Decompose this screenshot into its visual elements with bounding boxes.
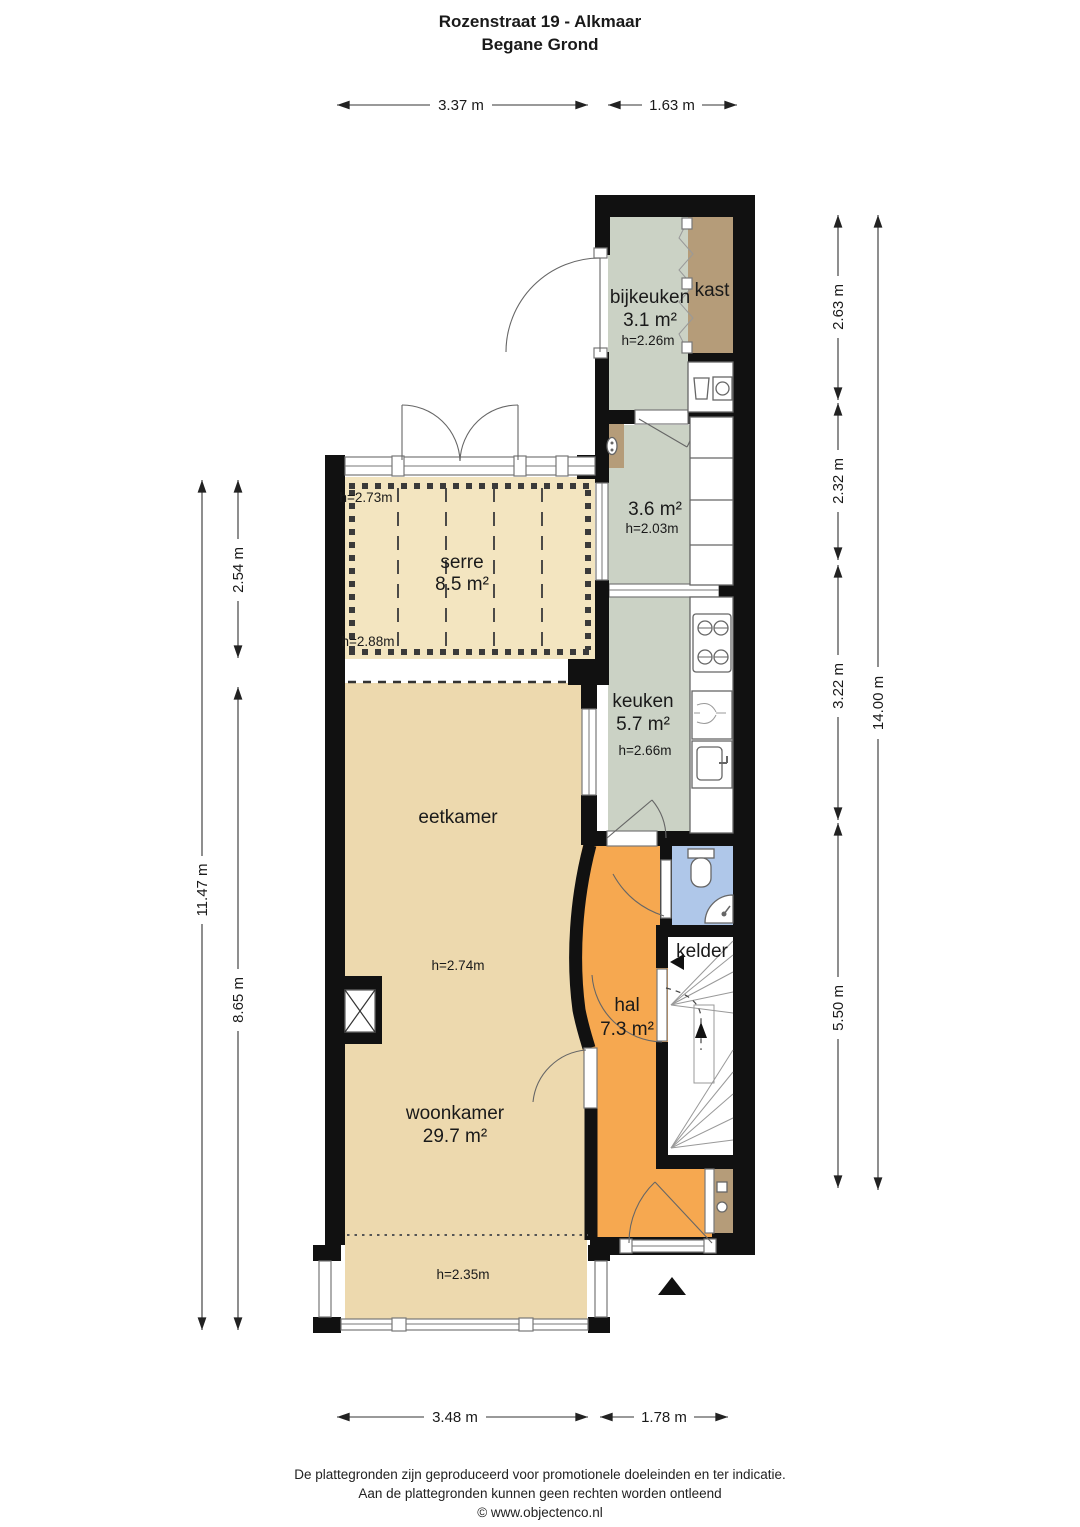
kitchen-counter: [690, 597, 733, 833]
dim-right-bijkeuken: 2.63 m: [830, 284, 847, 330]
label-kelder: kelder: [676, 941, 728, 962]
label-serre-height-bottom: h=2.88m: [342, 634, 395, 649]
label-keuken-area: 5.7 m²: [616, 714, 670, 735]
label-hallway-area: 3.6 m²: [628, 499, 682, 520]
dim-left-main: 8.65 m: [230, 977, 247, 1023]
boiler-icon: [607, 438, 617, 455]
label-eetkamer-height: h=2.74m: [432, 958, 485, 973]
dim-right-hal: 5.50 m: [830, 985, 847, 1031]
front-door-window: [620, 1239, 716, 1253]
dishwasher-icon: [692, 691, 732, 739]
floorplan-drawing: bijkeuken 3.1 m² h=2.26m kast 3.6 m² h=2…: [0, 0, 1080, 1527]
toilet-icon: [688, 849, 714, 887]
label-bay-height: h=2.35m: [437, 1267, 490, 1282]
label-keuken: keuken: [612, 691, 673, 712]
dim-top-serre: 3.37 m: [438, 97, 484, 114]
stove-icon: [693, 614, 731, 672]
chimney: [345, 990, 375, 1032]
dim-bottom-left: 3.48 m: [432, 1409, 478, 1426]
dim-left-total: 11.47 m: [194, 863, 211, 916]
floorplan-page: Rozenstraat 19 - Alkmaar Begane Grond: [0, 0, 1080, 1527]
floor-fills: [345, 217, 733, 1319]
label-serre-area: 8.5 m²: [435, 574, 489, 595]
footer-line-1: De plattegronden zijn geproduceerd voor …: [0, 1465, 1080, 1484]
washer-niche: [688, 362, 733, 412]
footer-line-2: Aan de plattegronden kunnen geen rechten…: [0, 1484, 1080, 1503]
label-serre: serre: [440, 552, 483, 573]
label-hal: hal: [614, 995, 639, 1016]
entrance-triangle: [658, 1277, 686, 1295]
footer-copyright: © www.objectenco.nl: [0, 1503, 1080, 1522]
dim-bottom-right: 1.78 m: [641, 1409, 687, 1426]
hallway-cabinets: [690, 417, 733, 585]
label-eetkamer: eetkamer: [418, 807, 498, 828]
label-kast: kast: [695, 280, 731, 301]
dim-right-hallway: 2.32 m: [830, 458, 847, 504]
sink-icon: [692, 741, 732, 788]
label-bijkeuken: bijkeuken: [610, 287, 690, 308]
eetkamer-keuken-slider: [582, 709, 596, 795]
dim-left-serre: 2.54 m: [230, 547, 247, 593]
label-hal-area: 7.3 m²: [600, 1019, 654, 1040]
dim-right-total: 14.00 m: [870, 676, 887, 730]
label-hallway-height: h=2.03m: [626, 521, 679, 536]
label-woonkamer-area: 29.7 m²: [423, 1126, 487, 1147]
serre-side-slider: [596, 483, 608, 580]
label-bijkeuken-height: h=2.26m: [622, 333, 675, 348]
dim-top-right: 1.63 m: [649, 97, 695, 114]
label-bijkeuken-area: 3.1 m²: [623, 310, 677, 331]
label-serre-height-top: h=2.73m: [340, 490, 393, 505]
dim-right-keuken: 3.22 m: [830, 663, 847, 709]
serre-top-window: [345, 456, 595, 476]
serre-french-doors: [402, 405, 518, 461]
label-woonkamer: woonkamer: [405, 1103, 505, 1124]
footer-disclaimer: De plattegronden zijn geproduceerd voor …: [0, 1465, 1080, 1522]
back-exterior-door: [506, 248, 607, 358]
label-keuken-height: h=2.66m: [619, 743, 672, 758]
